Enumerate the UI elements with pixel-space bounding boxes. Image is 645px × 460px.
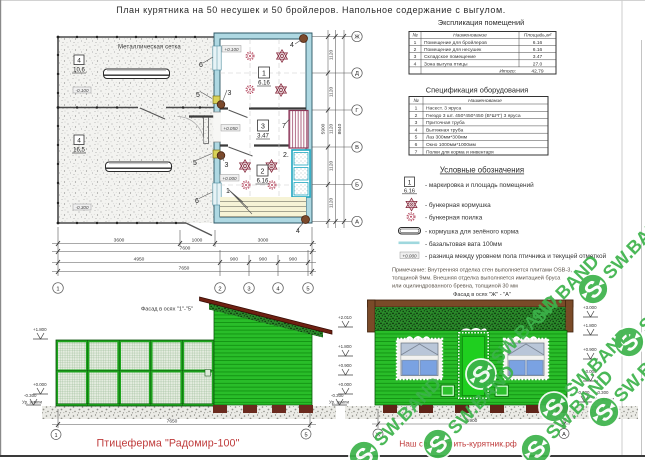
svg-text:3: 3 bbox=[414, 54, 417, 60]
svg-text:Наименование: Наименование bbox=[453, 33, 487, 39]
svg-text:4: 4 bbox=[415, 127, 418, 133]
svg-text:4: 4 bbox=[77, 58, 81, 65]
svg-text:5: 5 bbox=[306, 286, 309, 292]
svg-text:+1.800: +1.800 bbox=[33, 327, 47, 332]
svg-text:6.16: 6.16 bbox=[257, 179, 269, 185]
svg-text:4950: 4950 bbox=[134, 257, 145, 263]
svg-text:+3.000: +3.000 bbox=[583, 305, 597, 310]
svg-text:Полки для корма и инвентаря: Полки для корма и инвентаря bbox=[426, 149, 494, 155]
svg-text:+0.100: +0.100 bbox=[224, 47, 239, 52]
svg-text:1: 1 bbox=[414, 40, 417, 46]
svg-text:3.47: 3.47 bbox=[257, 134, 269, 140]
svg-text:- кормушка для зелёного корма: - кормушка для зелёного корма bbox=[425, 229, 519, 236]
svg-text:5: 5 bbox=[415, 135, 418, 141]
svg-text:1: 1 bbox=[54, 433, 57, 439]
svg-text:900: 900 bbox=[230, 257, 238, 263]
svg-text:4: 4 bbox=[290, 42, 294, 49]
svg-text:№: № bbox=[413, 98, 418, 104]
svg-text:2: 2 bbox=[414, 47, 417, 53]
svg-text:Итого:: Итого: bbox=[499, 68, 516, 74]
svg-text:2: 2 bbox=[218, 286, 221, 292]
svg-text:+0.000: +0.000 bbox=[338, 382, 352, 387]
svg-text:Помещение для бройлеров: Помещение для бройлеров bbox=[424, 39, 487, 46]
svg-text:3: 3 bbox=[415, 120, 418, 126]
svg-text:Д: Д bbox=[355, 71, 359, 77]
svg-text:1: 1 bbox=[56, 286, 59, 292]
svg-text:Площадь,м²: Площадь,м² bbox=[524, 33, 552, 39]
svg-text:1000: 1000 bbox=[192, 238, 203, 244]
svg-text:+0.000: +0.000 bbox=[222, 176, 237, 181]
svg-text:толщиной 9мм. Внешняя отделка: толщиной 9мм. Внешняя отделка выполняетс… bbox=[392, 275, 561, 282]
svg-text:Фасад в осях "1"-"5": Фасад в осях "1"-"5" bbox=[141, 307, 193, 313]
svg-text:Условные обозначения: Условные обозначения bbox=[440, 166, 524, 175]
svg-text:Окно 1000мм*1000мм: Окно 1000мм*1000мм bbox=[426, 142, 476, 148]
svg-text:-0.100: -0.100 bbox=[75, 88, 88, 93]
svg-text:6.16: 6.16 bbox=[533, 40, 543, 46]
svg-text:1120: 1120 bbox=[329, 161, 335, 172]
svg-text:2.: 2. bbox=[283, 152, 289, 159]
svg-text:Примечание: Внутренняя отделка: Примечание: Внутренняя отделка стен выпо… bbox=[392, 268, 572, 274]
svg-text:7600: 7600 bbox=[180, 246, 191, 252]
svg-text:Складское помещение: Складское помещение bbox=[424, 54, 476, 60]
svg-text:Спецификация оборудования: Спецификация оборудования bbox=[426, 86, 528, 95]
svg-text:Помещение для несушек: Помещение для несушек bbox=[424, 47, 482, 53]
svg-text:- бункерная кормушка: - бункерная кормушка bbox=[425, 201, 491, 209]
svg-text:2: 2 bbox=[261, 169, 265, 176]
svg-text:7650: 7650 bbox=[179, 266, 190, 272]
svg-text:2: 2 bbox=[415, 113, 418, 119]
svg-text:5: 5 bbox=[193, 160, 197, 167]
svg-text:900: 900 bbox=[289, 257, 297, 263]
svg-text:8640: 8640 bbox=[337, 123, 343, 134]
svg-text:16,5: 16,5 bbox=[73, 148, 85, 154]
svg-text:5900: 5900 bbox=[321, 123, 327, 134]
svg-text:6.16: 6.16 bbox=[258, 81, 270, 87]
svg-text:7: 7 bbox=[415, 149, 418, 155]
svg-text:1: 1 bbox=[408, 180, 412, 187]
svg-text:1: 1 bbox=[226, 188, 230, 195]
svg-text:Экспликация помещений: Экспликация помещений bbox=[438, 18, 524, 27]
svg-text:1: 1 bbox=[415, 106, 418, 112]
svg-text:План курятника на 50 несушек и: План курятника на 50 несушек и 50 бройле… bbox=[116, 5, 506, 15]
svg-text:- маркировка и площадь помещен: - маркировка и площадь помещений bbox=[425, 181, 534, 189]
svg-text:5: 5 bbox=[304, 432, 307, 438]
svg-text:+0.000: +0.000 bbox=[402, 253, 417, 258]
svg-text:+0.050: +0.050 bbox=[223, 126, 238, 131]
svg-text:27.0: 27.0 bbox=[533, 61, 543, 67]
svg-text:1: 1 bbox=[262, 71, 266, 78]
svg-text:Зона выгула птицы: Зона выгула птицы bbox=[424, 61, 468, 67]
svg-text:Ур. земли: Ур. земли bbox=[329, 400, 349, 405]
svg-text:4: 4 bbox=[77, 138, 81, 145]
svg-text:42.79: 42.79 bbox=[531, 68, 544, 74]
svg-text:+2.010: +2.010 bbox=[338, 315, 352, 320]
svg-text:- базальтовая вата 100мм: - базальтовая вата 100мм bbox=[425, 240, 502, 248]
svg-text:Металлическая сетка: Металлическая сетка bbox=[118, 45, 181, 51]
svg-text:6: 6 bbox=[199, 62, 203, 69]
svg-text:№: № bbox=[412, 33, 417, 39]
svg-text:7650: 7650 bbox=[167, 419, 178, 425]
svg-text:+0.000: +0.000 bbox=[33, 382, 47, 387]
svg-text:3: 3 bbox=[247, 286, 250, 292]
svg-text:Гнездо 3 шт. 450*450*450 (В*Ш*: Гнездо 3 шт. 450*450*450 (В*Ш*Г) 3 яруса bbox=[426, 113, 521, 119]
svg-text:Насест. 3 яруса: Насест. 3 яруса bbox=[426, 106, 462, 112]
svg-text:А: А bbox=[355, 220, 359, 226]
svg-text:3: 3 bbox=[261, 124, 265, 131]
svg-text:1120: 1120 bbox=[329, 87, 335, 98]
svg-text:или оцилиндрованного бревна, т: или оцилиндрованного бревна, толщиной 30… bbox=[392, 283, 518, 290]
svg-text:1120: 1120 bbox=[329, 50, 335, 61]
svg-text:900: 900 bbox=[259, 257, 267, 263]
svg-text:Ур. земли: Ур. земли bbox=[22, 400, 42, 405]
svg-text:10,6: 10,6 bbox=[73, 68, 85, 74]
svg-text:Фасад в осях "Ж" - "А": Фасад в осях "Ж" - "А" bbox=[453, 292, 511, 298]
svg-text:7: 7 bbox=[282, 123, 286, 130]
svg-text:Наименование: Наименование bbox=[468, 98, 502, 104]
svg-text:3: 3 bbox=[228, 90, 232, 97]
svg-text:5: 5 bbox=[196, 92, 200, 99]
svg-text:6: 6 bbox=[415, 142, 418, 148]
svg-text:1120: 1120 bbox=[329, 124, 335, 135]
svg-text:4: 4 bbox=[414, 61, 417, 67]
svg-text:В: В bbox=[355, 145, 359, 151]
svg-text:3000: 3000 bbox=[258, 238, 269, 244]
svg-text:Наш сайт: купить-курятник.рф: Наш сайт: купить-курятник.рф bbox=[399, 439, 517, 449]
svg-text:Вытяжная труба: Вытяжная труба bbox=[426, 127, 463, 133]
svg-text:Птицеферма "Радомир-100": Птицеферма "Радомир-100" bbox=[97, 438, 240, 450]
svg-text:3: 3 bbox=[225, 162, 229, 169]
svg-text:6.16: 6.16 bbox=[533, 47, 543, 53]
svg-text:-0.300: -0.300 bbox=[75, 205, 88, 210]
svg-text:+1.800: +1.800 bbox=[583, 323, 597, 328]
svg-text:3.47: 3.47 bbox=[533, 54, 543, 60]
svg-text:1120: 1120 bbox=[329, 198, 335, 209]
svg-text:+1.800: +1.800 bbox=[338, 344, 352, 349]
svg-text:Лаз 300мм*300мм: Лаз 300мм*300мм bbox=[426, 135, 468, 141]
svg-text:3600: 3600 bbox=[114, 238, 125, 244]
svg-text:- бункерная поилка: - бункерная поилка bbox=[425, 213, 483, 221]
svg-text:Приточная труба: Приточная труба bbox=[426, 120, 465, 126]
svg-text:Б: Б bbox=[355, 183, 359, 189]
svg-text:Ж: Ж bbox=[354, 35, 360, 41]
svg-text:6: 6 bbox=[195, 198, 199, 205]
svg-text:+0.900: +0.900 bbox=[338, 363, 352, 368]
